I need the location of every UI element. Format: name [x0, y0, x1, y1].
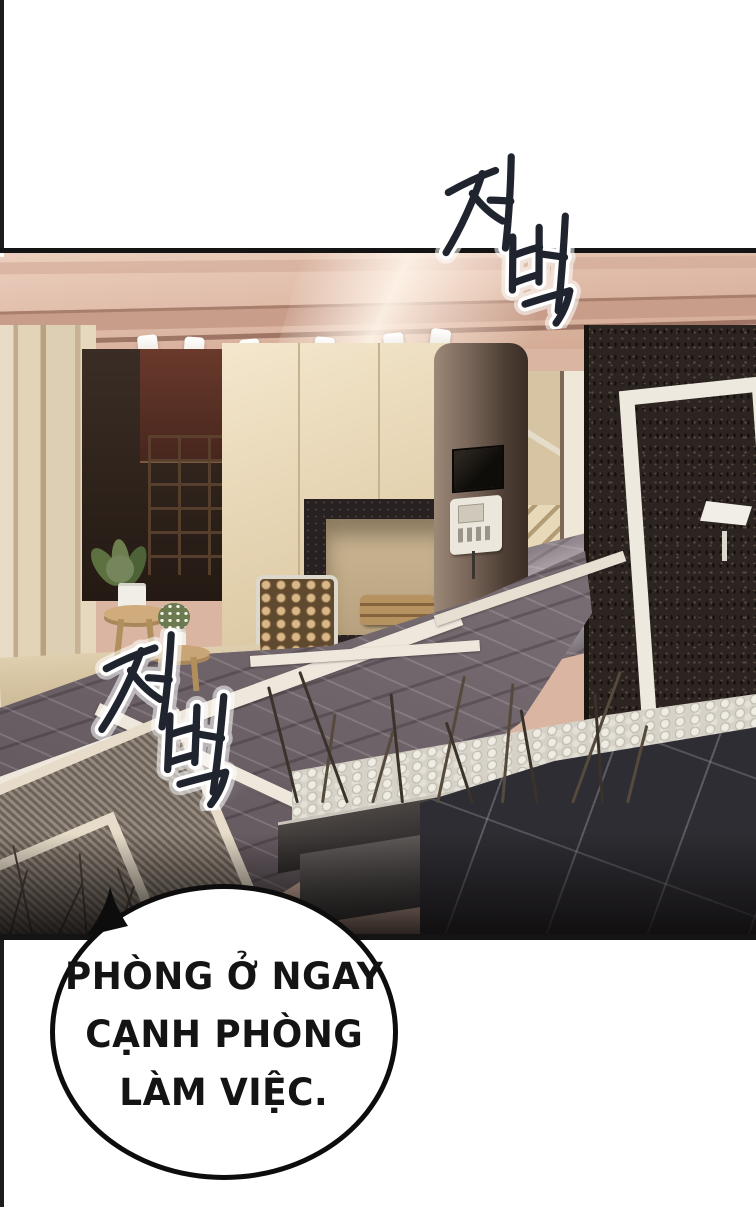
bubble-line: CẠNH PHÒNG [85, 1009, 363, 1061]
twig [520, 709, 539, 803]
bare-branches [286, 633, 650, 803]
wall-monitor [452, 445, 504, 494]
sfx-jeobeok-top [421, 142, 609, 342]
bubble-line: PHÒNG Ở NGAY [65, 951, 383, 1003]
sparkle [0, 253, 4, 257]
sfx-jeobeok-left [80, 622, 264, 819]
twig [593, 693, 604, 803]
panel-border-top [0, 248, 756, 253]
twig [501, 683, 514, 803]
bubble-line: LÀM VIỆC. [120, 1067, 329, 1119]
speech-bubble-tail [78, 884, 142, 948]
twig [371, 730, 395, 803]
intercom-cord [472, 551, 475, 579]
comic-page: 저벅 저벅 PHÒNG Ở NGAY CẠNH PHÒNG LÀM VIỆC. [0, 0, 756, 1207]
intercom-buttons [458, 526, 492, 543]
panel-scene [0, 253, 756, 934]
intercom-screen [458, 503, 484, 523]
twig [445, 722, 474, 804]
intercom-phone [450, 495, 502, 556]
twig [626, 725, 648, 803]
twig [390, 693, 404, 803]
wall-lamp-stem [722, 531, 727, 561]
